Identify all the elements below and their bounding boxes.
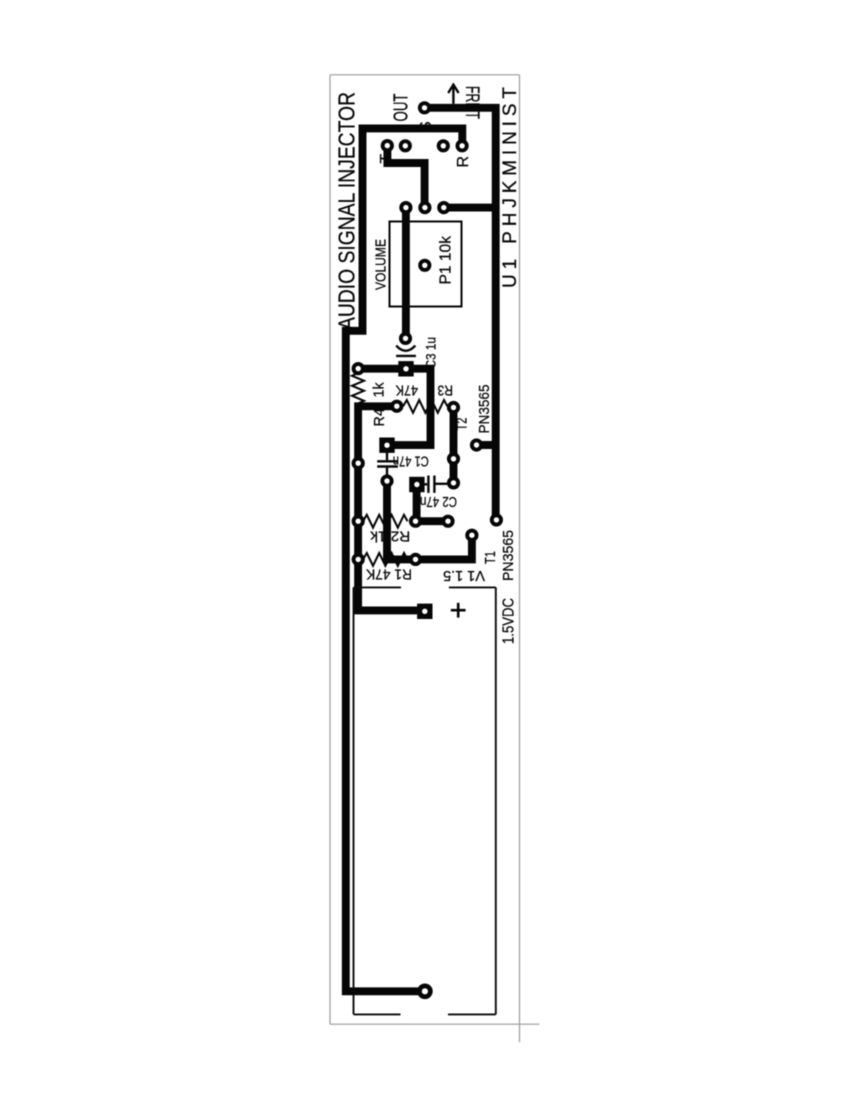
svg-text:T1: T1 [483, 551, 499, 564]
svg-text:C2 47n: C2 47n [420, 493, 457, 509]
svg-text:R1 47K: R1 47K [366, 566, 412, 582]
svg-text:C3 1u: C3 1u [424, 337, 440, 369]
svg-text:47K: 47K [395, 382, 418, 398]
svg-text:R2 1k: R2 1k [370, 527, 411, 543]
svg-text:OUT: OUT [390, 93, 413, 121]
svg-text:1k: 1k [372, 382, 388, 398]
svg-text:FRNT: FRNT [461, 86, 482, 119]
svg-text:R4: R4 [372, 408, 388, 426]
svg-text:T: T [378, 154, 395, 164]
svg-text:T2: T2 [455, 417, 471, 430]
svg-text:R3: R3 [438, 382, 454, 398]
svg-text:1.5VDC: 1.5VDC [501, 598, 518, 644]
svg-text:P1 10k: P1 10k [438, 236, 455, 285]
svg-text:VOLUME: VOLUME [373, 239, 389, 290]
svg-text:S: S [416, 121, 435, 132]
svg-text:C1 47n: C1 47n [393, 453, 429, 469]
svg-text:R: R [455, 156, 472, 168]
svg-text:PN3565: PN3565 [477, 384, 493, 433]
svg-text:V1 1.5: V1 1.5 [443, 567, 485, 583]
svg-text:AUDIO SIGNAL INJECTOR: AUDIO SIGNAL INJECTOR [334, 92, 360, 330]
svg-text:PN3565: PN3565 [501, 530, 517, 581]
